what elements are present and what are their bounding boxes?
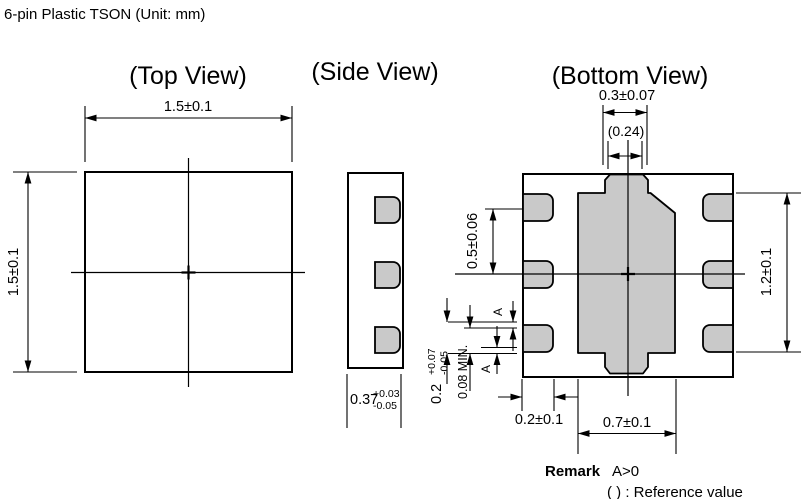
dimension-label-minus-tolerance: -0.05 — [439, 351, 451, 375]
side-view-pad-2 — [375, 262, 400, 288]
side-view-label: (Side View) — [311, 58, 438, 86]
top-view-label: (Top View) — [129, 62, 247, 90]
drawing-title: 6-pin Plastic TSON (Unit: mm) — [4, 6, 205, 23]
terminal-pullback-dimensions: A A 0.2 +0.07 -0.05 0.08 MIN. — [426, 298, 517, 404]
pullback-bottom-label: A — [479, 365, 493, 373]
top-view: (Top View) 1.5±0.1 1.5±0.1 — [6, 62, 305, 387]
dimension-label: 1.5±0.1 — [6, 248, 22, 296]
bottom-view: (Bottom View) 0.3±0.07 (0.24) — [426, 62, 801, 454]
dimension-label: 0.2±0.1 — [515, 412, 563, 428]
bottom-view-left-pad-1 — [523, 194, 553, 221]
dimension-label: 1.2±0.1 — [759, 248, 775, 296]
remark-condition: A>0 — [612, 463, 639, 480]
extension-lines — [608, 141, 642, 169]
dimension-label: 0.7±0.1 — [603, 415, 651, 431]
bottom-view-label: (Bottom View) — [552, 62, 709, 90]
pad-pitch-dimension: 0.5±0.06 — [465, 209, 523, 274]
extension-lines — [522, 379, 554, 411]
technical-drawing: 6-pin Plastic TSON (Unit: mm) (Top View)… — [0, 0, 808, 499]
dimension-label-plus-tolerance: +0.07 — [426, 348, 438, 375]
extension-lines — [13, 172, 77, 372]
side-view: (Side View) 0.37 +0.03 -0.05 — [311, 58, 438, 428]
min-clearance-label: 0.08 MIN. — [456, 345, 470, 399]
bottom-view-left-pad-3 — [523, 325, 553, 352]
pullback-top-label: A — [491, 308, 505, 316]
dimension-label-base: 0.2 — [429, 384, 445, 404]
side-view-pad-3 — [375, 327, 400, 353]
pad-row-span-dimension: 1.2±0.1 — [736, 193, 801, 352]
side-view-pad-1 — [375, 197, 400, 223]
top-view-width-dimension: 1.5±0.1 — [85, 99, 292, 162]
package-drawing-page: 6-pin Plastic TSON (Unit: mm) (Top View)… — [0, 0, 808, 499]
dimension-label: (0.24) — [608, 123, 645, 139]
bottom-view-right-pad-1 — [703, 194, 733, 221]
center-pad-width-dimension: 0.7±0.1 — [578, 379, 676, 454]
top-view-height-dimension: 1.5±0.1 — [6, 172, 77, 372]
dimension-label-plus-tolerance: +0.03 — [373, 388, 400, 400]
bottom-view-right-pad-3 — [703, 325, 733, 352]
remark-label: Remark — [545, 463, 601, 480]
reference-value-note: ( ) : Reference value — [607, 484, 743, 499]
tab-width-reference-dimension: (0.24) — [608, 123, 645, 169]
side-view-thickness-dimension: 0.37 +0.03 -0.05 — [347, 374, 401, 428]
remark-section: Remark A>0 ( ) : Reference value — [545, 463, 743, 499]
dimension-label: 1.5±0.1 — [164, 99, 212, 115]
pad-width-dimension: 0.2±0.1 — [498, 379, 578, 428]
dimension-label: 0.3±0.07 — [599, 88, 655, 104]
dimension-label-minus-tolerance: -0.05 — [373, 400, 397, 412]
dimension-label: 0.5±0.06 — [465, 213, 481, 269]
